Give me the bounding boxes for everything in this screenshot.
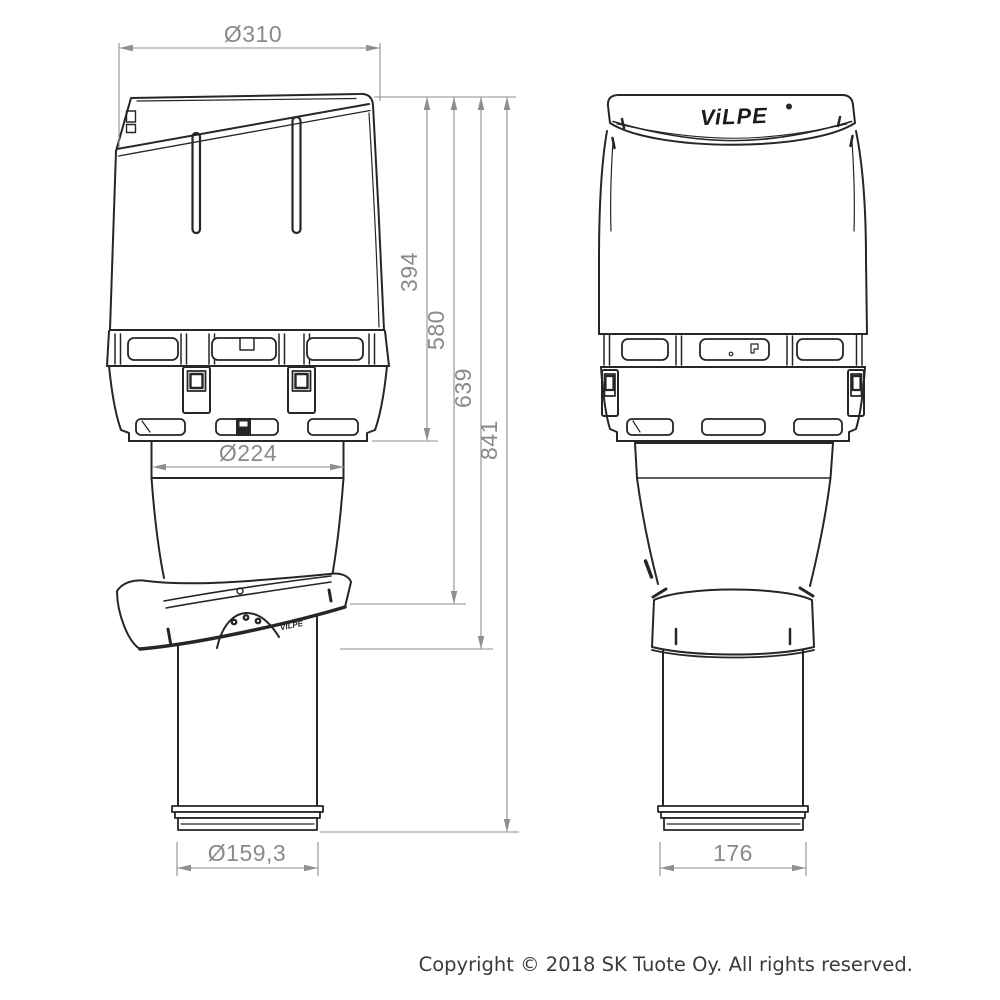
side-adapter-right-edge — [367, 366, 387, 441]
front-adapter-clip-right — [848, 370, 864, 416]
side-taper-right — [332, 478, 344, 577]
front-body-right-edge — [856, 131, 867, 334]
front-adapter-clip-left — [602, 370, 618, 416]
front-body-left-edge — [599, 131, 607, 334]
registered-mark-dot — [786, 104, 792, 110]
dim-pipe-diameter: Ø159,3 — [177, 840, 318, 876]
side-taper-left — [152, 478, 165, 578]
front-adapter-vents — [627, 419, 842, 435]
front-band-slots — [622, 339, 843, 360]
dim-label-224: Ø224 — [219, 440, 277, 466]
dim-label-639: 639 — [450, 368, 476, 408]
front-neck-right-edge — [810, 443, 833, 586]
dim-label-841: 841 — [476, 420, 502, 460]
side-flashing-tick-right — [329, 590, 331, 601]
dim-label-310: Ø310 — [224, 21, 282, 47]
front-view: ViLPE — [599, 95, 867, 830]
dim-label-159: Ø159,3 — [208, 840, 286, 866]
dim-label-580: 580 — [423, 310, 449, 350]
front-collar-corner-right — [800, 588, 813, 596]
dim-front-pipe-width: 176 — [660, 840, 806, 876]
copyright-text: Copyright © 2018 SK Tuote Oy. All rights… — [419, 953, 913, 976]
vilpe-logo: ViLPE — [700, 103, 769, 130]
dim-adapter-diameter: Ø224 — [152, 440, 344, 470]
vent-drawing-svg: VILPE ViLPE — [0, 0, 1000, 1000]
front-pipe-ribs — [658, 806, 808, 830]
side-band-slots — [128, 338, 363, 360]
front-neck-clip-mark — [646, 561, 652, 577]
side-adapter-lock-slit — [240, 422, 248, 427]
side-band-right-edge — [385, 331, 389, 366]
dim-label-176: 176 — [713, 840, 753, 866]
dim-label-394: 394 — [396, 252, 422, 292]
front-body-seam-right — [852, 141, 854, 231]
side-adapter-clip-right — [288, 367, 315, 413]
side-adapter-lock-block — [236, 418, 251, 436]
front-body-seam-left — [611, 141, 613, 231]
side-cap-outline — [110, 94, 384, 330]
side-adapter-left-edge — [109, 366, 129, 441]
side-band-left-edge — [107, 331, 109, 366]
side-adapter-clip-left — [183, 367, 210, 413]
side-pipe-ribs — [172, 806, 323, 830]
technical-drawing-page: VILPE ViLPE — [0, 0, 1000, 1000]
